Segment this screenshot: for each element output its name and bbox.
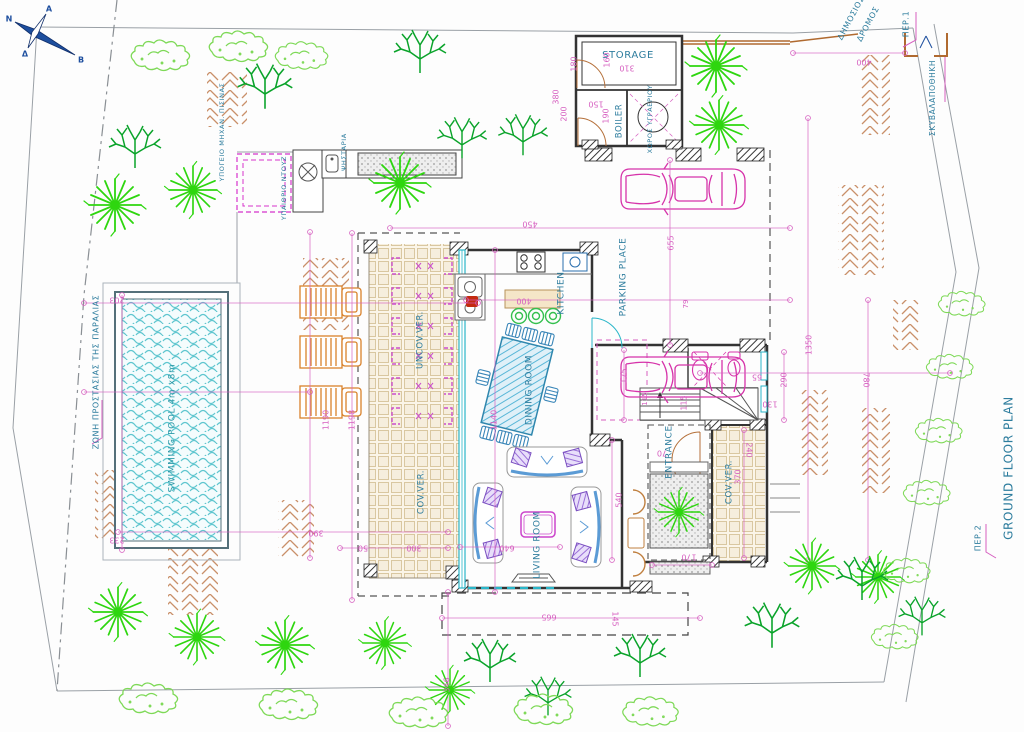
dim-79: 79 (682, 300, 690, 309)
dim-400: 400 (516, 297, 531, 306)
dim-170: 170 (681, 553, 696, 562)
label-outdoor-shower: ΥΠΑΙΘΡΙΟ ΝΤΟΥΖ (280, 156, 288, 221)
dim-400: 400 (856, 58, 871, 67)
dim-145: 145 (611, 611, 620, 626)
dim-640: 640 (499, 544, 514, 553)
tree-deciduous (109, 125, 161, 168)
dimension-line (791, 51, 908, 56)
ground-hatch (800, 390, 828, 475)
dim-233: 233 (109, 536, 124, 545)
tree-bush (119, 683, 177, 714)
tree-bush (623, 697, 678, 726)
wall-stub (630, 581, 652, 592)
staircase (640, 388, 758, 420)
wall-stub (582, 140, 598, 149)
label-uncovered-veranda: UNCOV.VER. (416, 311, 426, 369)
compass-letter-Δ: Δ (22, 50, 29, 59)
dim-200: 200 (560, 106, 569, 121)
sofa-left (473, 483, 503, 563)
side-table (628, 518, 644, 548)
veranda-tiles-right (712, 425, 765, 562)
label-per-2: ΠΕΡ.2 (974, 525, 983, 552)
parked-cars (621, 163, 745, 403)
ground-hatch (168, 545, 218, 615)
beach-zone-line (57, 0, 117, 691)
compass-rose: ΝΑΔΒ (6, 5, 84, 65)
bar-stool (529, 309, 544, 324)
wall-stub (740, 339, 765, 352)
label-living-room: LIVING ROOM (533, 511, 543, 579)
dim-290: 290 (780, 372, 789, 387)
dim-150: 150 (588, 100, 603, 109)
dim-380: 380 (552, 89, 561, 104)
label-garbage-store: ΣΚΥΒΑΛΑΠΟΘΗΚΗ (928, 60, 937, 136)
garbage-arrow (920, 36, 932, 48)
label-per-1: ΠΕΡ.1 (902, 11, 911, 38)
sofa-right (571, 487, 601, 567)
bar-stools (512, 309, 561, 324)
compass-letter-Α: Α (46, 5, 53, 14)
ground-hatch (207, 72, 247, 127)
dim-130: 130 (762, 400, 777, 409)
wall-stub (446, 566, 459, 579)
living-furniture (473, 447, 645, 582)
dim-370: 370 (734, 469, 743, 484)
veranda-tiles-left (369, 244, 460, 578)
dishwasher (563, 253, 587, 271)
dining-set (463, 319, 571, 453)
sofa-top (507, 447, 587, 477)
dim-203: 203 (109, 296, 124, 305)
tree-bush (938, 291, 985, 315)
wall-stub (751, 556, 765, 567)
dim-65: 65 (752, 373, 762, 382)
dim-1140: 1140 (490, 410, 499, 430)
garden-steps (770, 484, 800, 512)
label-kitchen: KITCHEN (557, 271, 567, 314)
tree-palm (784, 538, 840, 594)
wall-stub (590, 434, 610, 446)
dimension-line (668, 158, 673, 348)
tree-palm (84, 174, 146, 236)
tree-deciduous (498, 114, 547, 155)
dim-240: 240 (745, 442, 754, 457)
dim-540: 540 (615, 492, 624, 507)
dim-300: 300 (406, 544, 421, 553)
dim-1198: 1198 (348, 410, 357, 430)
toilet (693, 360, 708, 380)
dim-390: 390 (308, 529, 323, 538)
tree-palm (256, 616, 315, 675)
label-bbq: ΨΗΣΤΑΡΙΑ (340, 133, 348, 171)
wall-stub (364, 564, 377, 577)
dim-175: 175 (620, 368, 629, 383)
tree-bush (514, 694, 572, 725)
dim-50: 50 (358, 544, 368, 553)
wall-stub (737, 148, 764, 161)
dim-160: 160 (603, 52, 612, 67)
compass-letter-Ν: Ν (6, 15, 13, 24)
floor-plan-canvas: ΝΑΔΒ STORAGEBOILERΧΩΡΟΣ ΥΓΡΑΕΡΙΟΥKITCHEN… (0, 0, 1024, 732)
dim-346: 346 (443, 677, 452, 692)
tree-deciduous (899, 597, 946, 636)
tree-palm (169, 609, 225, 665)
ground-hatch (838, 185, 884, 275)
tree-palm (164, 161, 221, 218)
dim-780: 780 (862, 372, 871, 387)
label-boiler: BOILER (615, 104, 625, 139)
tree-deciduous (614, 634, 666, 677)
dim-115: 115 (680, 395, 689, 410)
bar-stool (512, 309, 527, 324)
dim-190: 190 (602, 108, 611, 123)
dim-665: 665 (541, 613, 556, 622)
tree-bush (883, 558, 930, 582)
wall-stub (585, 148, 612, 161)
dim-70: 70 (657, 449, 667, 458)
dimension-line (388, 226, 793, 231)
dimension-line (440, 616, 703, 621)
ground-hatch (893, 300, 919, 350)
wall-stub (364, 240, 377, 253)
label-plan-title: GROUND FLOOR PLAN (1002, 396, 1016, 540)
tree-bush (915, 418, 962, 442)
tree-bush (209, 31, 267, 62)
dim-310: 310 (619, 64, 634, 73)
tree-bush (275, 42, 328, 69)
tree-bush (131, 40, 189, 71)
label-beach-protection-zone: ΖΩΝΗ ΠΡΟΣΤΑΣΙΑΣ ΤΗΣ ΠΑΡΑΛΙΑΣ (92, 295, 101, 450)
car-1 (621, 163, 745, 215)
entrance-step (650, 462, 708, 472)
label-parking-place: PARKING PLACE (619, 238, 629, 317)
ground-hatch (278, 500, 314, 557)
tree-deciduous (745, 603, 800, 648)
dim-180: 180 (570, 56, 579, 71)
dim-450: 450 (522, 220, 537, 229)
tree-deciduous (394, 30, 446, 73)
wall-stub (666, 140, 682, 149)
tree-palm (359, 617, 412, 670)
dim-115: 115 (641, 392, 649, 405)
compass-letter-Β: Β (78, 56, 84, 65)
tree-deciduous (464, 639, 516, 682)
dim-1350: 1350 (805, 335, 814, 355)
label-dining-room: DINING ROOM (525, 355, 535, 425)
tree-bush (259, 689, 317, 720)
wall-stub (663, 339, 688, 352)
bbq-area (237, 150, 462, 212)
ground-hatch (862, 408, 890, 493)
wall-stub (750, 419, 765, 430)
label-covered-veranda-left: COV.VER. (417, 470, 427, 514)
wall-stub (705, 419, 721, 430)
tree-palm (690, 96, 749, 155)
label-swimming-pool: SWIMMING POOL 4m x8m (168, 364, 178, 493)
wall-stub (676, 148, 701, 161)
label-gas-room: ΧΩΡΟΣ ΥΓΡΑΕΡΙΟΥ (646, 85, 654, 154)
dim-655: 655 (667, 235, 676, 250)
tree-palm (89, 583, 148, 642)
label-pool-machinery: ΥΠΟΓΕΙΟ ΜΗΧΑΝ. ΠΙΣΙΝΑΣ (218, 83, 226, 183)
stove (517, 252, 545, 272)
dim-1190: 1190 (322, 410, 331, 430)
tree-bush (871, 624, 918, 648)
